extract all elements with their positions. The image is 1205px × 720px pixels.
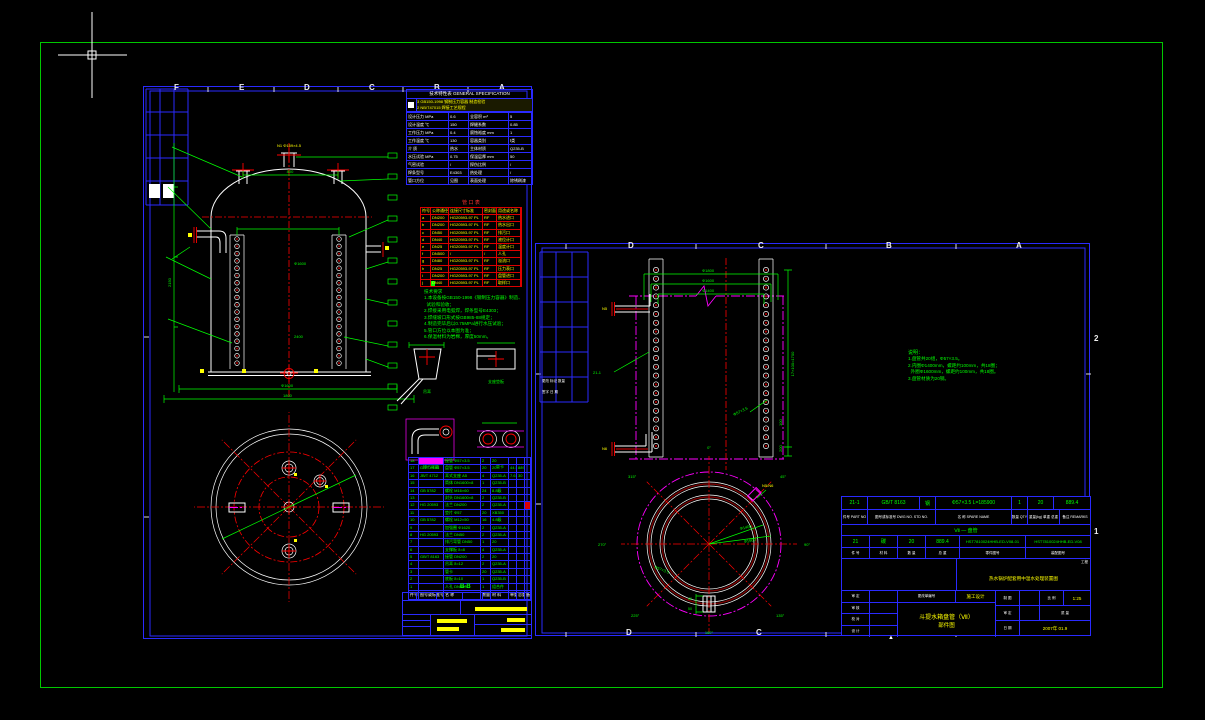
table-cell: 焊条型号 <box>407 169 449 176</box>
table-cell: 表面处理 <box>469 177 509 184</box>
tb-d-qty: 20 <box>898 536 926 547</box>
table-cell: 腐蚀裕度 mm <box>469 129 509 136</box>
circle-nozzle-label: N5/N6 <box>762 483 774 488</box>
right-notes-line-4: 3.盘管材质为20钢。 <box>908 376 1078 383</box>
table-cell: 设计压力 MPa <box>407 113 449 120</box>
tb-lbl-partno: 件号 PART NO <box>842 510 868 524</box>
table-cell: 保温层厚 mm <box>469 153 509 160</box>
table-cell: / <box>509 161 532 168</box>
cad-canvas: { "canvas":{"bg":"#000000","border_color… <box>0 0 1205 720</box>
bom-table: 18接管 Φ57×3.522017GB/T 8163盘管 Φ57×3.52020… <box>408 457 532 600</box>
dim-width2: 1800 <box>283 393 293 398</box>
table-cell: RF <box>483 280 497 286</box>
rzone-a-top: A <box>1016 241 1022 250</box>
crosshair-cursor[interactable] <box>0 0 140 110</box>
dim-40: 40 <box>688 597 692 601</box>
tb-sign-3: 校 对 <box>842 614 870 625</box>
dia-dim-1800: Φ1800 <box>702 268 715 273</box>
tb-project-label: 工程 <box>1081 560 1088 565</box>
tb-lbl-name: 名 称 SPARE NAME <box>936 510 1012 524</box>
section-label-bb: B-B <box>460 584 471 590</box>
tb-dl-asmdwg: 装配图号 <box>1026 548 1090 558</box>
coil-column-right <box>337 237 342 366</box>
dim-height: 2400 <box>294 334 304 339</box>
right-drawing-sheet: Φ1800 Φ1600 Φ1400 17×100=1700 100 200 Φ5… <box>535 243 1090 636</box>
dia-dim-1600: Φ1600 <box>702 278 715 283</box>
tb-assembly-name: Ⅶ — 盘管 <box>842 525 1090 535</box>
spec-revision-2: 2 NB/T47015 焊接工艺规程 <box>417 105 532 111</box>
tb-part-unitwt: 20 <box>1028 497 1054 509</box>
table-cell: 0.6 <box>449 113 469 120</box>
tb-project-name: 热水锅炉配套用中温水处理装置图 <box>989 576 1058 582</box>
tb-scale-label: 比 例 <box>1040 591 1064 605</box>
tb-lbl-qty: 数量 QTY <box>1012 510 1028 524</box>
tb-part-mat: 钢 <box>920 497 936 509</box>
tb-date-value: 2007年 01.9 <box>1020 621 1090 636</box>
tb-scale-value: 1:25 <box>1064 591 1090 605</box>
tb-sign-2: 审 核 <box>842 603 870 614</box>
table-cell: 水压试验 MPa <box>407 153 449 160</box>
tb-part-no: 21-1 <box>842 497 868 509</box>
left-title-block <box>402 592 532 636</box>
angle-0: 0° <box>707 445 711 450</box>
table-cell: 热水 <box>449 145 469 152</box>
spec-rows: 设计压力 MPa0.6全容积 m³5设计温度 ℃150焊缝系数0.85工作压力 … <box>407 112 532 184</box>
table-cell: 管口方位 <box>407 177 449 184</box>
tb-dl-mat: 材 料 <box>870 548 898 558</box>
table-cell: 设计温度 ℃ <box>407 121 449 128</box>
table-cell: 容器类别 <box>469 137 509 144</box>
table-cell: 工作温度 ℃ <box>407 137 449 144</box>
angle-180: 180° <box>705 630 714 635</box>
table-cell: 150 <box>449 121 469 128</box>
table-cell: 焊缝系数 <box>469 121 509 128</box>
tb-part-qty: 1 <box>1012 497 1028 509</box>
table-cell: DN40 <box>431 280 449 286</box>
tb-draw-label: 制 图 <box>996 591 1020 605</box>
dim-left: 2150 <box>167 277 172 287</box>
zone-letter-f: F <box>174 83 179 92</box>
left-notes-line-1: 1.本设备按GB150-1998《钢制压力容器》制造、 <box>424 295 532 302</box>
tb-d-partdwg: HST7810024HHB-ED-V08-01 <box>960 536 1026 547</box>
tb-dl-wt: 总 重 <box>926 548 960 558</box>
table-cell: 0.4 <box>449 129 469 136</box>
right-notes: 说明： 1.盘管共20组，Φ57×3.5。 2.内圈Φ1400mm，螺距约100… <box>908 349 1078 382</box>
tb-d-wt: 889.4 <box>926 536 960 547</box>
rzone-d-top: D <box>628 241 634 250</box>
tb-mass-label: 质 量 <box>1040 606 1090 620</box>
n6-label: N6 <box>602 446 608 451</box>
rzone-c-bottom: C <box>756 628 762 637</box>
table-cell: 主体材质 <box>469 145 509 152</box>
rzone-num-2: 2 <box>1094 334 1098 343</box>
n5-label: N5 <box>602 306 608 311</box>
table-cell: 介 质 <box>407 145 449 152</box>
tb-date-label: 日 期 <box>996 621 1020 636</box>
part-callout: 21-1 <box>593 370 602 375</box>
dim-top: 800 <box>287 169 294 174</box>
dim-shell: Φ1600 <box>294 261 307 266</box>
tb-check-label: 审 定 <box>996 606 1020 620</box>
table-cell: j <box>421 280 431 286</box>
tb-sign-4: 设 计 <box>842 626 870 637</box>
circle-dim-inner: Φ1400 <box>739 523 753 531</box>
table-cell: 5 <box>509 113 532 120</box>
spec-table-title: 技术特性表 GENERAL SPECIFICATION <box>407 90 532 99</box>
tb-lbl-remarks: 备注 REMARKS <box>1060 510 1090 524</box>
dim-100: 100 <box>778 419 783 426</box>
zone-letter-e: E <box>239 83 244 92</box>
tb-part-totwt: 889.4 <box>1054 497 1090 509</box>
tb-dl-no: 件 号 <box>842 548 870 558</box>
angle-315: 315° <box>628 474 637 479</box>
table-cell: 全容积 m³ <box>469 113 509 120</box>
table-cell: Q235-B <box>509 145 532 152</box>
dia-dim-1400: Φ1400 <box>702 288 715 293</box>
table-cell: 除锈刷漆 <box>509 177 532 184</box>
right-title-block: 21-1 GB/T 8163 钢 Φ57×3.5 L=185900 1 20 8… <box>841 496 1091 636</box>
left-notes: 技术要求 1.本设备按GB150-1998《钢制压力容器》制造、 试验和验收； … <box>424 289 532 341</box>
n1-label: N1 Φ159×4.5 <box>277 143 302 148</box>
right-notes-title: 说明： <box>908 349 1078 356</box>
balloon-stack <box>388 153 397 410</box>
table-cell: 0.75 <box>449 153 469 160</box>
angle-90: 90° <box>804 542 810 547</box>
table-cell: 0.85 <box>509 121 532 128</box>
nozzle-table-title: 管 口 表 <box>420 199 522 206</box>
table-cell: / <box>509 169 532 176</box>
table-cell: 探伤比例 <box>469 161 509 168</box>
tb-stage: 施工设计 <box>956 591 995 602</box>
tb-dl-partdwg: 零件图号 <box>960 548 1026 558</box>
spec-table: 技术特性表 GENERAL SPECIFICATION 3 GB150-1998… <box>406 89 533 185</box>
table-cell: 1 <box>509 129 532 136</box>
angle-270: 270° <box>598 542 607 547</box>
zone-letter-c: C <box>369 83 375 92</box>
coil-column-left <box>235 237 240 366</box>
rzone-d-bottom: D <box>626 628 632 637</box>
tb-part-size: Φ57×3.5 L=185900 <box>936 497 1012 509</box>
tb-d-mat: 碳 <box>870 536 898 547</box>
table-cell: 热处理 <box>469 169 509 176</box>
pitch-dim: 17×100=1700 <box>790 351 795 376</box>
dim-200: 200 <box>778 445 783 452</box>
tb-dl-qty: 数 量 <box>898 548 926 558</box>
table-cell: HG20593-97 PL <box>449 280 483 286</box>
tb-drawing-title: 斗提水箱盘管（Ⅶ） <box>919 612 974 621</box>
tb-change-label: 更改单编号 <box>898 591 956 602</box>
angle-225: 225° <box>631 613 640 618</box>
table-cell: E4303 <box>449 169 469 176</box>
detail-label-1: 吊耳 <box>423 389 431 394</box>
left-notes-line-7: 6.保温材料为岩棉，厚度50mm。 <box>424 334 532 341</box>
table-cell: 130 <box>449 137 469 144</box>
rzone-num-1: 1 <box>1094 527 1098 536</box>
circle-dim-outer: Φ1600 <box>743 537 757 544</box>
dim-width: Φ1600 <box>281 383 294 388</box>
tb-part-std: GB/T 8163 <box>868 497 920 509</box>
dim-50: 50 <box>688 607 692 611</box>
left-drawing-sheet: N1 Φ159×4.5 800 Φ1600 2400 Φ1600 1800 21… <box>143 86 532 639</box>
zone-letter-d: D <box>304 83 310 92</box>
table-cell: Ⅰ类 <box>509 137 532 144</box>
nozzle-table: 符号公称通径连接尺寸标准密封面用途或名称aDN200HG20593-97 PLR… <box>420 207 522 287</box>
table-cell: 50 <box>509 153 532 160</box>
rev-block-line-2: 签字 日 期 <box>542 390 558 395</box>
sheet-fold-marker: ▲ <box>888 635 894 641</box>
table-cell: 见图 <box>449 177 469 184</box>
table-cell: / <box>449 161 469 168</box>
table-cell: 工作压力 MPa <box>407 129 449 136</box>
rzone-b-top: B <box>886 241 892 250</box>
tb-d-asmdwg: HST7810024HHB-ED-V08 <box>1026 536 1090 547</box>
rev-block-line-1: 更改 标记 数量 <box>542 379 565 384</box>
rzone-c-top: C <box>758 241 764 250</box>
tb-lbl-dwgno: 图号或标准号 DWG NO. STD NO. <box>868 510 936 524</box>
angle-135: 135° <box>776 613 785 618</box>
table-cell: 取样口 <box>497 280 521 286</box>
tb-sign-1: 审 定 <box>842 591 870 602</box>
tb-lbl-wt: 重量(kg) 单重 总重 <box>1028 510 1060 524</box>
tb-drawing-subtitle: 部件图 <box>938 621 955 629</box>
pipe-dim-label: Φ57×3.5 <box>732 405 749 417</box>
tb-blank-cell <box>842 559 957 590</box>
detail-label-2: 支座垫板 <box>488 378 504 384</box>
angle-45: 45° <box>780 474 786 479</box>
table-cell: 气密试验 <box>407 161 449 168</box>
tb-d-no: 21 <box>842 536 870 547</box>
